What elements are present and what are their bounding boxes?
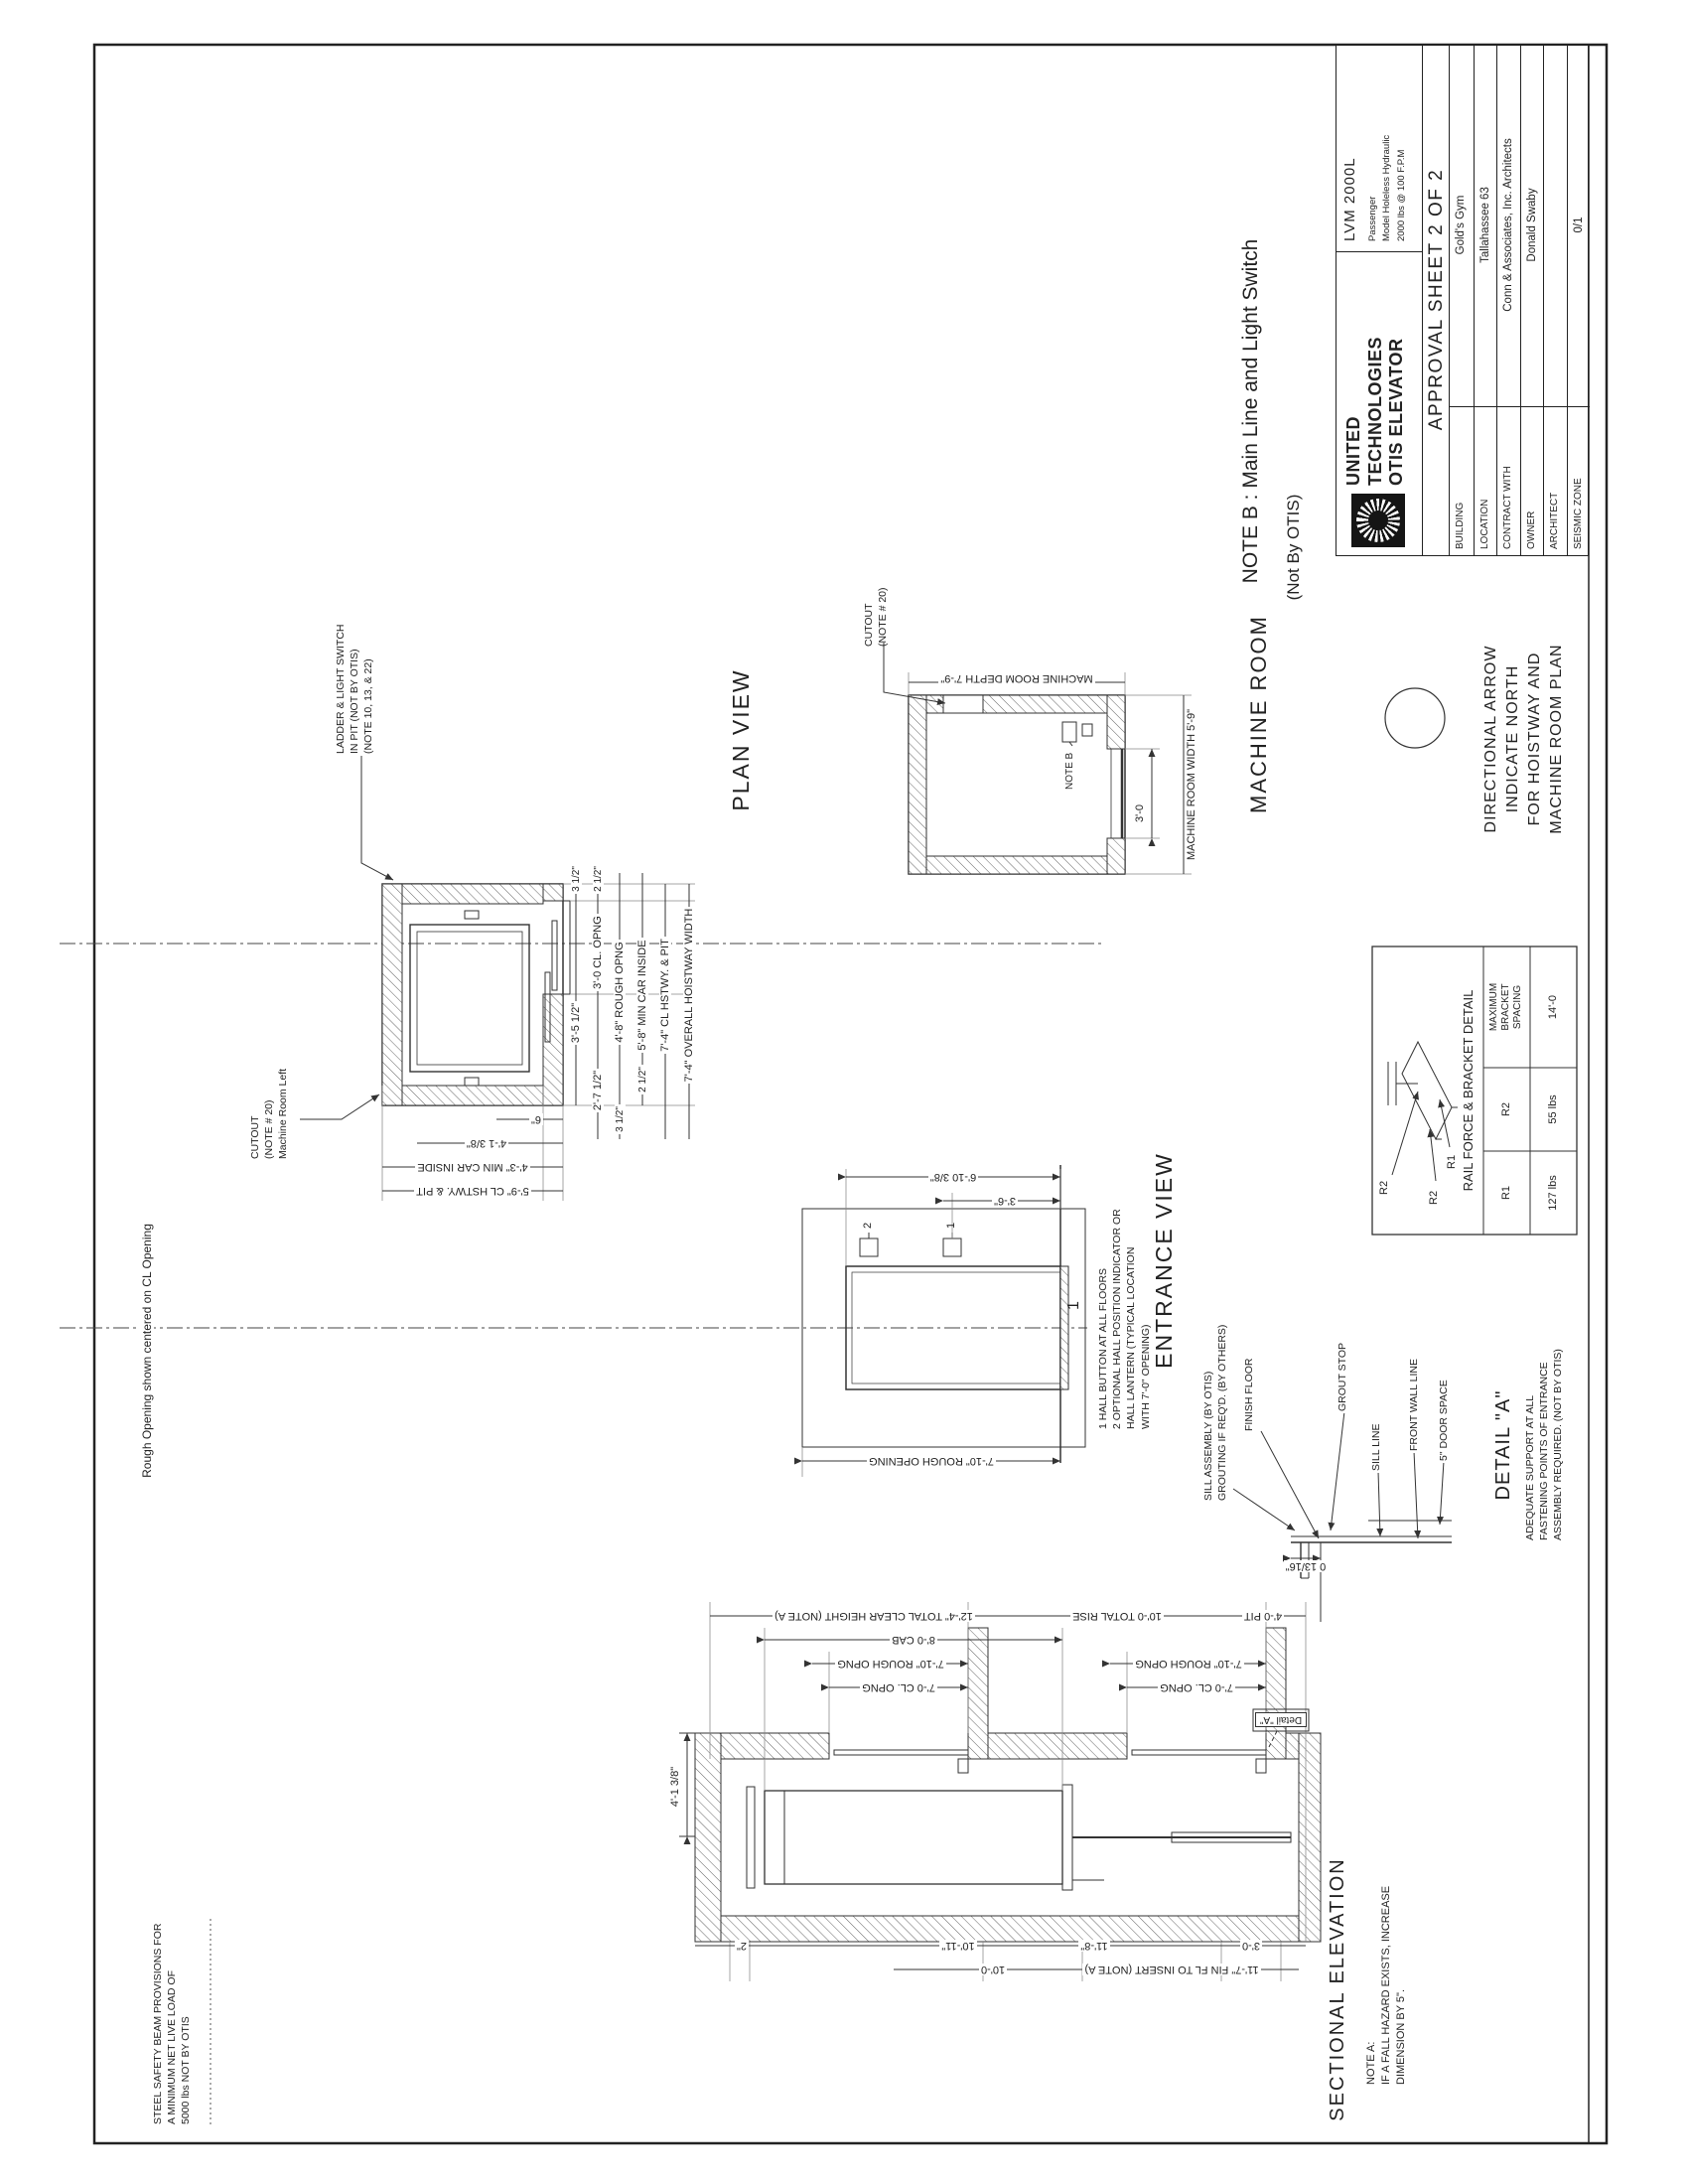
model-name: LVM 2000L — [1341, 157, 1358, 241]
row-label: CONTRACT WITH — [1497, 406, 1520, 555]
ladder-light-switch-note: LADDER & LIGHT SWITCH IN PIT (NOT BY OTI… — [334, 625, 376, 755]
rail-r2-label: R2 — [1428, 1191, 1442, 1205]
elevation-note-a: NOTE A: IF A FALL HAZARD EXISTS, INCREAS… — [1364, 1886, 1409, 2085]
machine-room-cutout-note: CUTOUT (NOTE # 20) — [862, 587, 890, 647]
rail-r2-label: R2 — [1378, 1181, 1392, 1195]
directional-arrow-circle — [1385, 688, 1445, 748]
approval-sheet-title: APPROVAL SHEET 2 OF 2 — [1422, 44, 1450, 555]
table-row: SEISMIC ZONE 0/1 — [1567, 44, 1591, 555]
row-value: Gold's Gym — [1450, 44, 1474, 406]
sill-line-label: SILL LINE — [1370, 1422, 1383, 1473]
table-row: ARCHITECT — [1543, 44, 1567, 555]
entrance-tag-1: 1 — [945, 1223, 959, 1229]
table-row: BUILDING Gold's Gym — [1450, 44, 1474, 555]
row-value: Donald Swaby — [1521, 44, 1544, 406]
finish-floor-label: FINISH FLOOR — [1243, 1356, 1256, 1433]
entrance-notes: 1 HALL BUTTON AT ALL FLOORS 2 OPTIONAL H… — [1096, 1209, 1153, 1429]
landscape-drawing-sheet: Rough Opening shown centered on CL Openi… — [0, 0, 1688, 2184]
detail-a-note: ADEQUATE SUPPORT AT ALL FASTENING POINTS… — [1523, 1349, 1566, 1540]
grout-stop-label: GROUT STOP — [1336, 1341, 1349, 1413]
entrance-floor-number: 1 — [1064, 1301, 1084, 1310]
title-block-model: LVM 2000L Passenger Model Holeless Hydra… — [1336, 44, 1422, 251]
row-label: SEISMIC ZONE — [1568, 406, 1591, 555]
row-label: BUILDING — [1450, 406, 1474, 555]
row-label: LOCATION — [1475, 406, 1497, 555]
title-block-company: UNITED TECHNOLOGIES OTIS ELEVATOR — [1336, 251, 1422, 555]
steel-beam-note: STEEL SAFETY BEAM PROVISIONS FOR A MINIM… — [151, 1924, 194, 2124]
company-name: UNITED TECHNOLOGIES OTIS ELEVATOR — [1343, 337, 1408, 486]
row-label: OWNER — [1521, 406, 1544, 555]
scanned-drawing-page: { "sheet": { "note_b_line1": "NOTE B : M… — [0, 0, 1688, 2184]
table-row: OWNER Donald Swaby — [1520, 44, 1544, 555]
entrance-view-geometry — [802, 1165, 1085, 1477]
door-space-label: 5" DOOR SPACE — [1438, 1378, 1451, 1463]
row-value: Tallahassee 63 — [1475, 44, 1497, 406]
row-value — [1544, 44, 1567, 406]
rail-r1-label: R1 — [1446, 1155, 1460, 1169]
otis-logo-icon — [1351, 494, 1405, 547]
entrance-tag-2: 2 — [862, 1223, 876, 1229]
model-spec: Passenger Model Holeless Hydraulic 2000 … — [1366, 135, 1409, 241]
row-value: 0/1 — [1568, 44, 1591, 406]
table-row: CONTRACT WITH Conn & Associates, Inc. Ar… — [1496, 44, 1520, 555]
table-row: LOCATION Tallahassee 63 — [1474, 44, 1497, 555]
row-value: Conn & Associates, Inc. Architects — [1497, 44, 1520, 406]
title-block-table: BUILDING Gold's Gym LOCATION Tallahassee… — [1450, 44, 1590, 555]
title-block: UNITED TECHNOLOGIES OTIS ELEVATOR LVM 20… — [1336, 45, 1589, 556]
sill-assembly-label: SILL ASSEMBLY (BY OTIS) GROUTING IF REQ'… — [1201, 1325, 1229, 1501]
row-label: ARCHITECT — [1544, 406, 1567, 555]
front-wall-line-label: FRONT WALL LINE — [1408, 1357, 1421, 1453]
machine-room-note-b-tag: NOTE B — [1064, 753, 1077, 790]
plan-cutout-note: CUTOUT (NOTE # 20) Machine Room Left — [248, 1069, 291, 1159]
